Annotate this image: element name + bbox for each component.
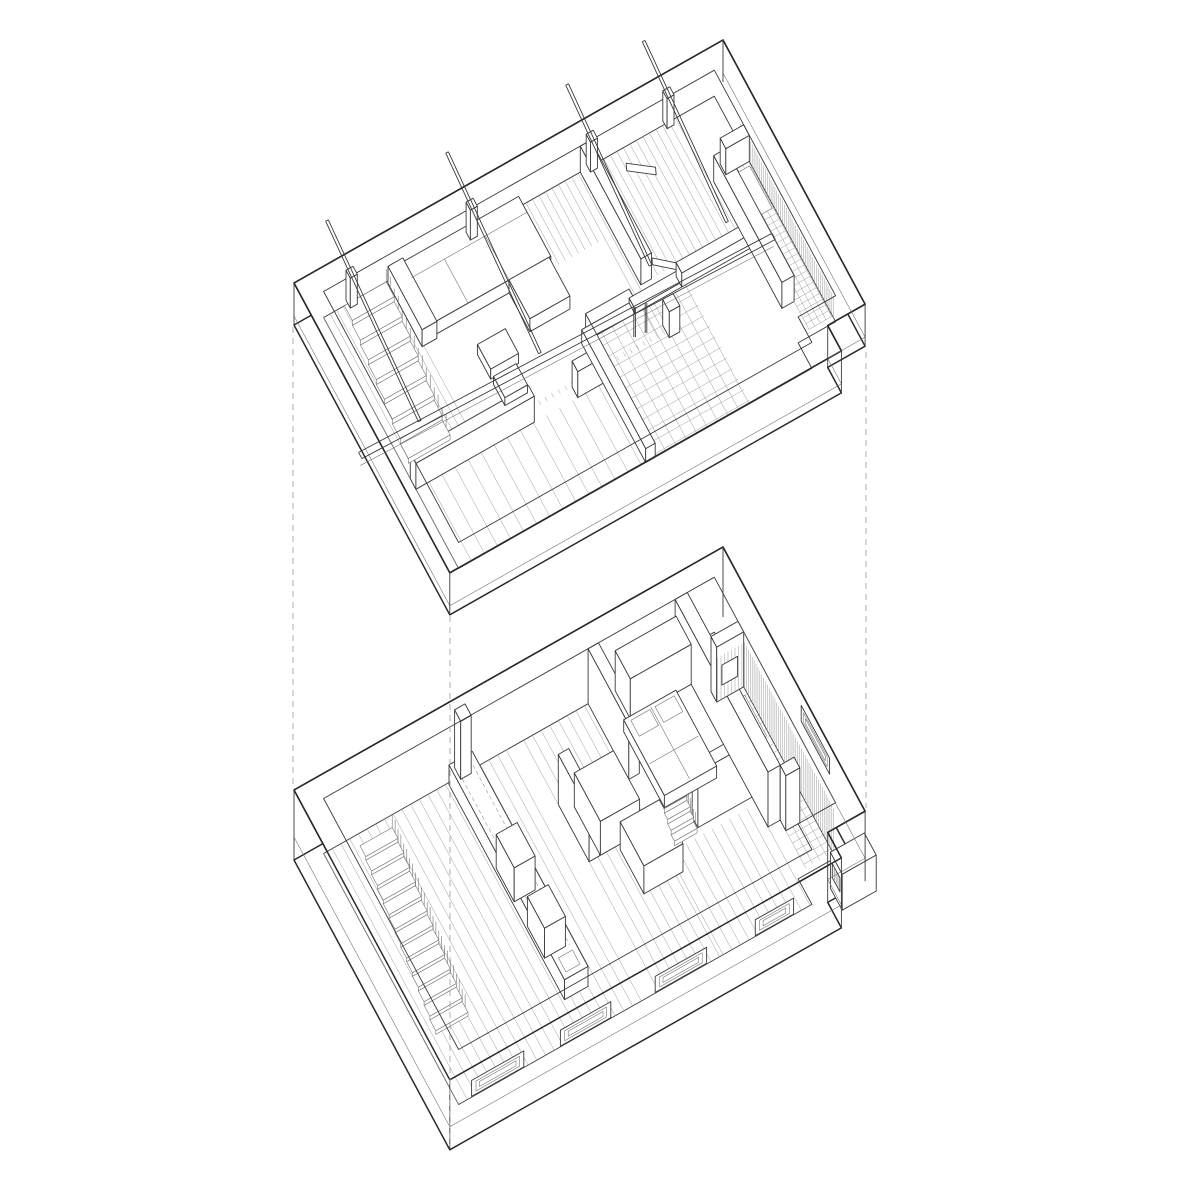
lower-floor-plate [294,547,876,1150]
axonometric-svg [0,0,1200,1200]
upper-floor-plate [294,40,865,615]
drawing-page [0,0,1200,1200]
